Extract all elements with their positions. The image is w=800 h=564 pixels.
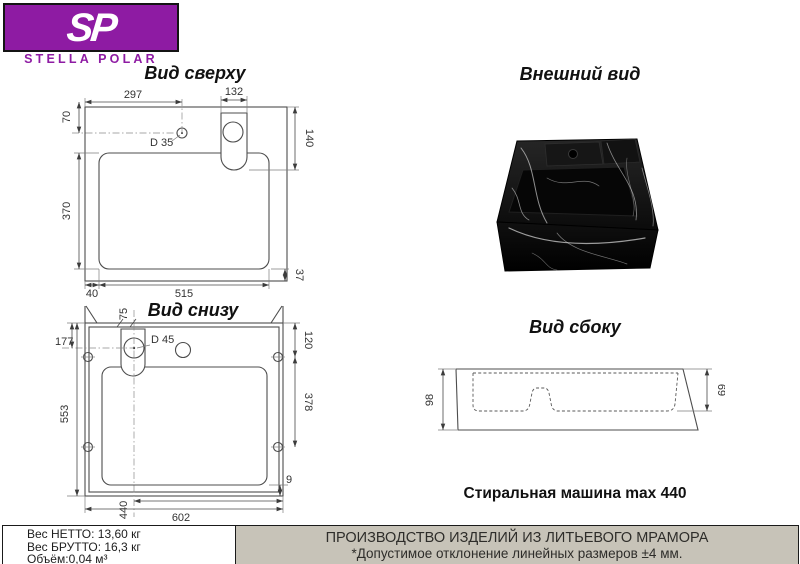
washing-machine-note: Стиральная машина max 440 [430,485,720,503]
side-view-outline [456,369,698,430]
side-view-dimensions: 98 69 [425,369,725,430]
top-view-title: Вид сверху [120,63,270,84]
production-line1: ПРОИЗВОДСТВО ИЗДЕЛИЙ ИЗ ЛИТЬЕВОГО МРАМОР… [236,531,798,546]
dim-440: 440 [118,501,130,519]
external-view-title: Внешний вид [505,64,655,85]
top-view-centerlines [72,99,182,133]
dim-98: 98 [425,394,436,406]
footer-production-note: ПРОИЗВОДСТВО ИЗДЕЛИЙ ИЗ ЛИТЬЕВОГО МРАМОР… [235,526,798,564]
weight-netto: Вес НЕТТО: 13,60 кг [27,528,235,541]
sink-basin-recess [509,167,637,216]
volume: Объём:0,04 м³ [27,553,235,564]
dim-37: 37 [293,269,305,281]
dim-602: 602 [172,512,190,524]
footer-weight-specs: Вес НЕТТО: 13,60 кг Вес БРУТТО: 16,3 кг … [3,526,235,564]
bottom-view-outline [81,306,285,496]
dim-132: 132 [225,86,243,98]
dim-515: 515 [175,288,193,300]
dim-370: 370 [61,202,73,220]
dim-9: 9 [286,474,292,486]
marble-sink-photo [497,139,658,271]
dim-d45-label: D 45 [151,334,174,346]
bottom-view-right-ear [271,306,283,323]
dim-553: 553 [59,405,71,423]
dim-297: 297 [124,89,142,101]
sink-front-face [497,222,658,271]
brand-logo: SP [3,3,179,52]
brand-logo-sp-monogram: SP [65,8,117,48]
side-view-basin-profile [473,373,678,411]
dim-378: 378 [302,393,314,411]
footer-bar: Вес НЕТТО: 13,60 кг Вес БРУТТО: 16,3 кг … [2,525,799,564]
dim-70: 70 [61,111,73,123]
dim-d35-label: D 35 [150,137,173,149]
dim-177: 177 [55,336,73,348]
top-view-basin-edge [99,153,269,269]
sink-faucet-hole [569,150,578,159]
spec-sheet-page: SP STELLA POLAR Вид сверху Внешний вид В… [0,0,800,564]
dim-140: 140 [303,129,315,147]
bottom-view-left-ear [85,306,97,323]
dim-75: 75 [118,308,130,320]
side-view-drawing: 98 69 [425,353,725,445]
top-view-drawing: 297 132 70 140 370 40 515 37 [58,86,320,304]
dim-40: 40 [86,288,98,300]
external-view-photo [487,128,672,280]
dim-120: 120 [302,331,314,349]
dim-69: 69 [715,384,725,396]
bottom-view-drawing: 75 D 45 177 553 120 378 9 440 602 [55,302,321,525]
side-view-title: Вид сбоку [500,317,650,338]
bottom-view-basin-footprint [102,367,267,485]
production-line2: *Допустимое отклонение линейных размеров… [236,546,798,561]
bottom-view-overflow-hole [176,343,191,358]
